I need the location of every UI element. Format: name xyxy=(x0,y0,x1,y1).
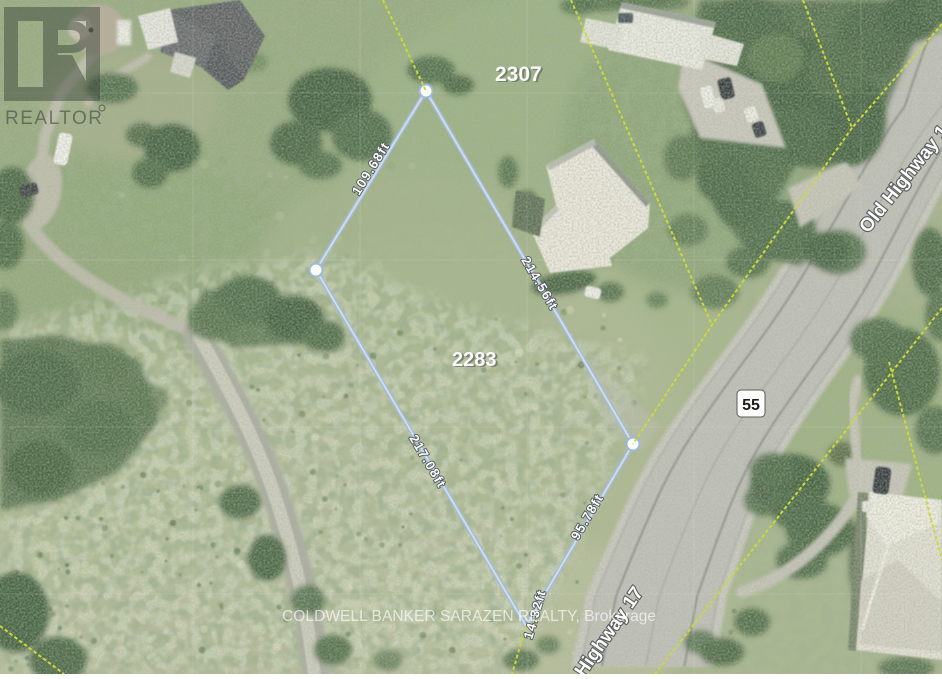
svg-text:COLDWELL BANKER SARAZEN REALTY: COLDWELL BANKER SARAZEN REALTY, Brokerag… xyxy=(282,608,656,625)
svg-text:REALTOR: REALTOR xyxy=(5,108,104,129)
svg-text:2283: 2283 xyxy=(452,349,497,371)
svg-text:55: 55 xyxy=(742,397,760,414)
svg-text:2307: 2307 xyxy=(495,63,542,86)
